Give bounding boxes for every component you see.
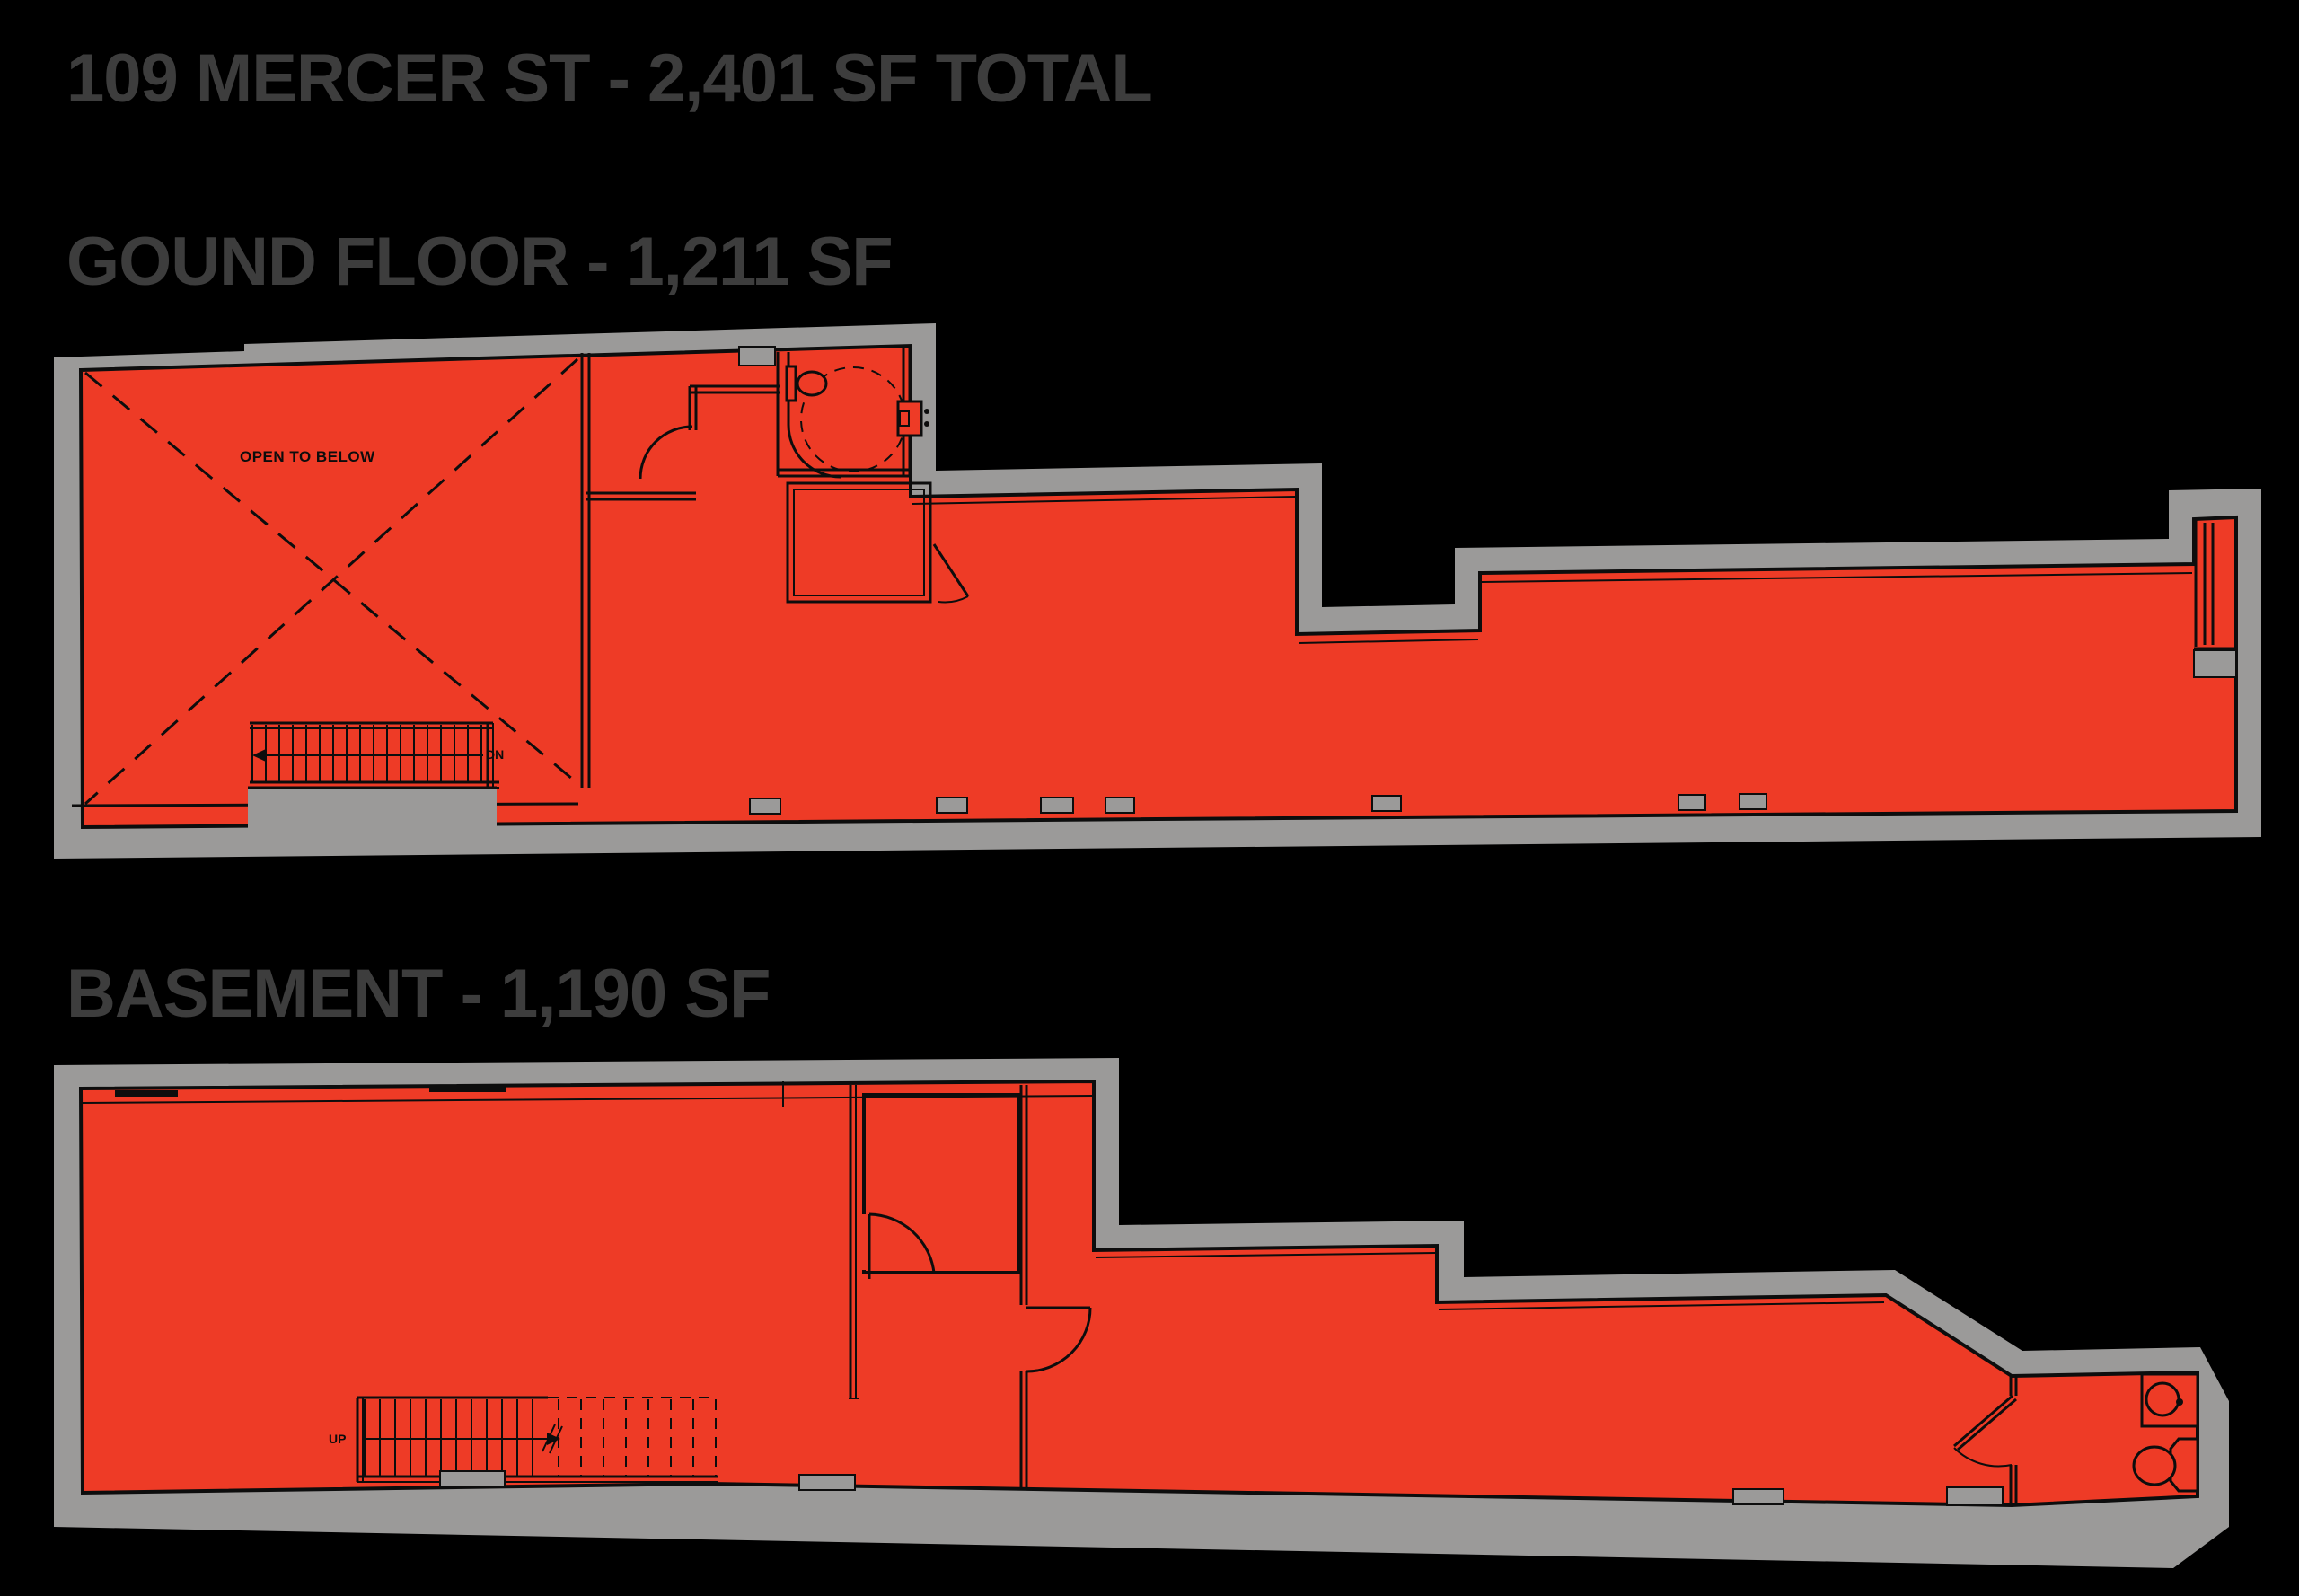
basement-sink-icon	[2142, 1374, 2198, 1426]
ground-floor-plan	[54, 323, 2261, 859]
storefront-pier	[2194, 650, 2236, 677]
basement-plan	[54, 1058, 2229, 1568]
stairs-down-label: DN	[486, 747, 504, 762]
floor-plan-drawing	[0, 0, 2299, 1596]
stairs-up-label: UP	[329, 1432, 346, 1446]
open-to-below-label: OPEN TO BELOW	[240, 448, 375, 466]
ground-top-door-notch	[739, 347, 775, 366]
floor-plan-page: 109 MERCER ST - 2,401 SF TOTAL GOUND FLO…	[0, 0, 2299, 1596]
under-stairs-wall	[248, 788, 497, 844]
